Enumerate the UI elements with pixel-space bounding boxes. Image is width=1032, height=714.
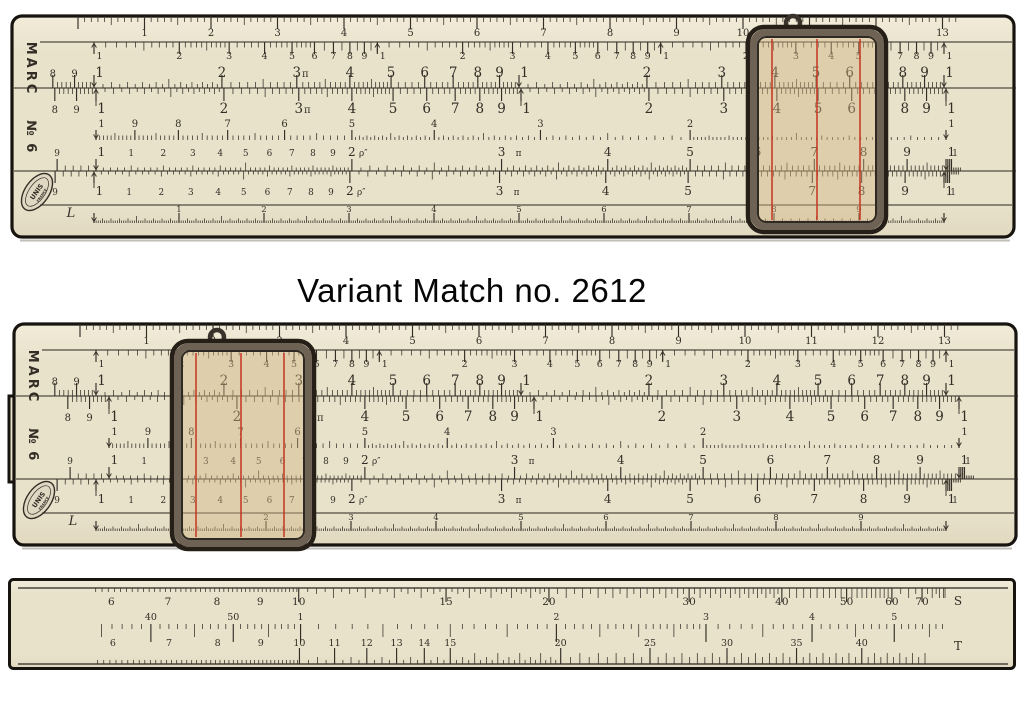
svg-text:7: 7 [899,359,905,370]
svg-text:2: 2 [348,492,356,506]
svg-text:1: 1 [663,51,669,62]
svg-text:1: 1 [520,65,529,81]
svg-text:1: 1 [96,51,102,62]
svg-text:5: 5 [362,427,368,438]
svg-text:9: 9 [930,359,936,370]
svg-text:11: 11 [805,336,818,347]
svg-text:3: 3 [190,149,196,159]
svg-text:1: 1 [141,457,147,467]
svg-text:3: 3 [719,373,728,389]
svg-text:13: 13 [938,336,951,347]
svg-text:6: 6 [754,492,762,506]
svg-text:6: 6 [601,205,606,215]
svg-text:9: 9 [328,188,334,198]
svg-text:2: 2 [687,119,693,130]
cursor-magnifier [748,16,886,232]
svg-text:1: 1 [126,188,132,198]
cursor-glass [181,350,305,540]
svg-text:4: 4 [348,373,357,389]
svg-text:1: 1 [298,612,304,623]
svg-text:7: 7 [330,51,336,62]
svg-text:6: 6 [265,188,271,198]
slide-rule-top: 1234567891011121312345678912345678912345… [10,14,1020,242]
svg-text:5: 5 [389,373,398,389]
svg-text:5: 5 [572,51,578,62]
svg-text:4: 4 [809,612,815,623]
svg-text:2: 2 [208,28,214,39]
svg-text:4: 4 [547,359,553,370]
svg-text:2: 2 [220,101,229,117]
svg-text:9: 9 [675,336,681,347]
svg-text:2: 2 [745,359,751,370]
svg-text:10: 10 [293,638,305,649]
svg-text:4: 4 [545,51,551,62]
slide-rule-middle: 1234567891011121312345678912345678912345… [12,322,1022,550]
svg-text:2: 2 [158,188,164,198]
svg-text:5: 5 [858,359,864,370]
svg-text:8: 8 [914,51,920,62]
svg-text:9: 9 [903,492,911,506]
svg-text:5: 5 [402,409,411,425]
svg-text:5: 5 [407,28,413,39]
svg-text:10: 10 [739,336,752,347]
svg-text:9: 9 [935,409,944,425]
svg-text:8: 8 [52,377,58,388]
svg-text:6: 6 [422,373,431,389]
svg-text:8: 8 [474,65,483,81]
svg-text:2: 2 [462,359,468,370]
svg-text:2: 2 [658,409,667,425]
model-label: № 6 [25,428,40,462]
svg-text:7: 7 [287,188,293,198]
svg-text:25: 25 [644,638,656,649]
svg-text:9: 9 [73,377,79,388]
svg-text:4: 4 [431,205,436,215]
svg-text:7: 7 [542,336,548,347]
svg-text:12: 12 [361,638,373,649]
svg-text:40: 40 [145,612,157,623]
svg-text:9: 9 [673,28,679,39]
svg-text:8: 8 [609,336,615,347]
svg-text:7: 7 [540,28,546,39]
svg-text:7: 7 [289,149,295,159]
sine-tangent-rule-image: 6789101520304050607040501234567891011121… [8,578,1018,672]
svg-text:π: π [516,149,522,159]
svg-text:4: 4 [361,409,370,425]
svg-text:7: 7 [688,513,693,523]
svg-text:7: 7 [166,638,172,649]
svg-text:6: 6 [108,596,115,608]
svg-text:5: 5 [409,336,415,347]
svg-text:4: 4 [773,373,782,389]
svg-text:5: 5 [241,188,247,198]
svg-text:1: 1 [111,427,117,438]
svg-text:3: 3 [732,409,741,425]
svg-text:6: 6 [603,513,608,523]
s-scale-letter: S [954,594,962,608]
svg-text:7: 7 [686,205,691,215]
svg-text:7: 7 [614,51,620,62]
svg-text:40: 40 [775,596,788,608]
svg-text:9: 9 [647,359,653,370]
svg-text:9: 9 [901,184,909,198]
svg-text:8: 8 [476,373,485,389]
svg-text:1: 1 [97,101,106,117]
svg-text:4: 4 [341,28,347,39]
l-scale-letter: L [66,206,76,221]
svg-text:8: 8 [914,409,923,425]
svg-text:1: 1 [945,65,954,81]
svg-text:1: 1 [111,453,119,467]
svg-text:35: 35 [790,638,802,649]
svg-text:π: π [514,188,520,198]
svg-text:9: 9 [52,188,58,198]
svg-text:2: 2 [460,51,466,62]
svg-text:1: 1 [948,119,954,130]
svg-text:8: 8 [773,513,778,523]
svg-text:7: 7 [224,119,230,130]
svg-text:8: 8 [214,596,221,608]
svg-text:9: 9 [86,413,92,424]
svg-text:π: π [302,69,309,80]
svg-text:1: 1 [96,184,104,198]
svg-text:30: 30 [682,596,695,608]
svg-text:9: 9 [145,427,151,438]
svg-text:1: 1 [948,359,954,370]
svg-text:4: 4 [617,453,625,467]
svg-text:1: 1 [95,65,104,81]
svg-text:15: 15 [439,596,452,608]
svg-text:10: 10 [292,596,305,608]
svg-text:1: 1 [961,427,967,438]
svg-text:8: 8 [873,453,881,467]
svg-text:1: 1 [143,336,149,347]
svg-text:6: 6 [474,28,480,39]
svg-text:5: 5 [827,409,836,425]
slide-rule-middle-image: 1234567891011121312345678912345678912345… [12,322,1022,550]
svg-text:5: 5 [891,612,897,623]
svg-text:8: 8 [50,69,56,80]
svg-text:1: 1 [947,101,956,117]
svg-text:6: 6 [267,149,273,159]
svg-text:9: 9 [330,149,336,159]
svg-text:9: 9 [497,373,506,389]
svg-text:8: 8 [901,101,910,117]
svg-text:8: 8 [349,359,355,370]
svg-text:9: 9 [497,101,506,117]
svg-text:4: 4 [444,427,450,438]
svg-text:3: 3 [496,184,504,198]
svg-text:9: 9 [928,51,934,62]
svg-text:3: 3 [348,513,353,523]
svg-text:1: 1 [380,51,386,62]
svg-text:9: 9 [920,65,929,81]
svg-text:1: 1 [98,492,106,506]
svg-text:6: 6 [281,119,287,130]
svg-text:1: 1 [952,496,958,506]
svg-text:30: 30 [721,638,733,649]
svg-text:9: 9 [858,513,863,523]
svg-text:3: 3 [795,359,801,370]
svg-text:π: π [516,496,522,506]
svg-text:7: 7 [451,373,460,389]
svg-text:5: 5 [518,513,523,523]
svg-text:15: 15 [444,638,456,649]
svg-text:3: 3 [703,612,709,623]
svg-text:2: 2 [346,184,354,198]
svg-text:4: 4 [262,51,268,62]
svg-text:4: 4 [217,149,223,159]
l-scale-letter: L [68,514,78,529]
svg-text:13: 13 [936,28,949,39]
svg-text:6: 6 [476,336,482,347]
svg-text:7: 7 [616,359,622,370]
svg-text:1: 1 [535,409,544,425]
svg-text:5: 5 [387,65,396,81]
svg-text:1: 1 [98,145,106,159]
svg-text:ρ″: ρ″ [359,149,368,159]
svg-text:6: 6 [880,359,886,370]
svg-text:8: 8 [607,28,613,39]
svg-text:9: 9 [73,105,79,116]
svg-text:3: 3 [188,188,194,198]
svg-text:50: 50 [840,596,853,608]
svg-text:8: 8 [310,149,316,159]
slide-rule-top-image: 1234567891011121312345678912345678912345… [10,14,1020,242]
svg-text:1: 1 [960,409,969,425]
svg-text:7: 7 [165,596,172,608]
svg-text:2: 2 [176,51,182,62]
svg-text:8: 8 [52,105,58,116]
svg-text:3: 3 [274,28,280,39]
svg-text:2: 2 [361,453,369,467]
svg-text:9: 9 [54,496,60,506]
svg-text:3: 3 [346,205,351,215]
svg-text:π: π [529,457,535,467]
svg-text:4: 4 [786,409,795,425]
svg-text:8: 8 [632,359,638,370]
svg-text:1: 1 [110,409,119,425]
svg-text:1: 1 [98,119,104,130]
svg-text:1: 1 [97,373,106,389]
caption: Variant Match no. 2612 [232,272,712,310]
svg-text:2: 2 [218,65,227,81]
svg-text:4: 4 [830,359,836,370]
svg-text:1: 1 [522,373,531,389]
svg-text:9: 9 [258,638,264,649]
svg-text:2: 2 [645,101,654,117]
svg-text:9: 9 [132,119,138,130]
svg-text:40: 40 [856,638,868,649]
svg-text:6: 6 [597,359,603,370]
svg-text:5: 5 [516,205,521,215]
svg-text:4: 4 [346,65,355,81]
svg-text:7: 7 [811,492,819,506]
svg-text:3: 3 [498,145,506,159]
svg-text:9: 9 [363,359,369,370]
svg-text:8: 8 [489,409,498,425]
svg-text:5: 5 [686,145,694,159]
svg-text:4: 4 [433,513,438,523]
svg-text:14: 14 [418,638,430,649]
svg-text:3: 3 [498,492,506,506]
svg-text:ρ″: ρ″ [357,188,366,198]
svg-text:8: 8 [308,188,314,198]
svg-text:7: 7 [876,373,885,389]
model-label: № 6 [23,120,38,154]
svg-text:8: 8 [860,492,868,506]
photo-collage: 1234567891011121312345678912345678912345… [0,0,1032,714]
svg-text:2: 2 [643,65,652,81]
svg-text:70: 70 [915,596,928,608]
svg-text:2: 2 [261,205,266,215]
svg-text:9: 9 [916,453,924,467]
svg-text:2: 2 [160,496,166,506]
svg-text:3: 3 [294,101,303,117]
svg-text:5: 5 [699,453,707,467]
svg-text:6: 6 [110,638,116,649]
svg-text:8: 8 [630,51,636,62]
t-scale-letter: T [954,639,962,653]
svg-text:3: 3 [537,119,543,130]
svg-text:2: 2 [700,427,706,438]
svg-text:5: 5 [349,119,355,130]
svg-text:60: 60 [885,596,898,608]
svg-text:3: 3 [509,51,515,62]
svg-text:1: 1 [950,188,956,198]
svg-text:9: 9 [71,69,77,80]
svg-text:6: 6 [311,51,317,62]
svg-text:1: 1 [382,359,388,370]
svg-text:8: 8 [65,413,71,424]
cursor-magnifier [172,330,314,549]
svg-text:5: 5 [389,101,398,117]
svg-text:2: 2 [160,149,166,159]
svg-text:3: 3 [511,359,517,370]
svg-text:2: 2 [348,145,356,159]
svg-text:6: 6 [420,65,429,81]
svg-text:7: 7 [824,453,832,467]
svg-text:9: 9 [361,51,367,62]
svg-text:ρ″: ρ″ [359,496,368,506]
svg-text:3: 3 [292,65,301,81]
svg-text:7: 7 [332,359,338,370]
svg-text:4: 4 [604,492,612,506]
svg-text:8: 8 [323,457,329,467]
svg-text:9: 9 [903,145,911,159]
svg-text:11: 11 [329,638,341,649]
svg-text:20: 20 [542,596,555,608]
svg-text:9: 9 [54,149,60,159]
svg-text:9: 9 [67,457,73,467]
svg-text:7: 7 [889,409,898,425]
svg-text:12: 12 [872,336,885,347]
svg-text:5: 5 [684,184,692,198]
svg-text:7: 7 [464,409,473,425]
svg-text:50: 50 [227,612,239,623]
svg-text:5: 5 [574,359,580,370]
svg-text:4: 4 [602,184,610,198]
svg-text:8: 8 [175,119,181,130]
svg-text:8: 8 [901,373,910,389]
svg-text:6: 6 [767,453,775,467]
svg-text:3: 3 [226,51,232,62]
svg-text:5: 5 [243,149,249,159]
svg-text:4: 4 [431,119,437,130]
svg-text:1: 1 [946,51,952,62]
brand-label: MARC [25,350,40,405]
svg-text:3: 3 [717,65,726,81]
svg-text:3: 3 [719,101,728,117]
svg-text:20: 20 [555,638,567,649]
svg-text:1: 1 [141,28,147,39]
svg-text:8: 8 [899,65,908,81]
svg-text:4: 4 [604,145,612,159]
svg-text:13: 13 [391,638,403,649]
svg-text:3: 3 [550,427,556,438]
svg-text:6: 6 [847,373,856,389]
svg-text:1: 1 [965,457,971,467]
svg-text:8: 8 [215,638,221,649]
svg-text:9: 9 [922,101,931,117]
svg-text:4: 4 [343,336,349,347]
svg-text:9: 9 [922,373,931,389]
brand-label: MARC [23,42,38,97]
svg-text:6: 6 [860,409,869,425]
svg-text:8: 8 [476,101,485,117]
svg-text:ρ″: ρ″ [372,457,381,467]
svg-text:6: 6 [422,101,431,117]
svg-text:8: 8 [916,359,922,370]
svg-text:5: 5 [686,492,694,506]
svg-text:6: 6 [435,409,444,425]
svg-text:6: 6 [595,51,601,62]
svg-text:3: 3 [511,453,519,467]
svg-text:4: 4 [348,101,357,117]
svg-text:1: 1 [128,496,134,506]
svg-text:π: π [317,413,324,424]
svg-text:1: 1 [665,359,671,370]
svg-text:7: 7 [897,51,903,62]
svg-text:9: 9 [495,65,504,81]
svg-text:1: 1 [522,101,531,117]
svg-text:9: 9 [257,596,264,608]
svg-text:1: 1 [128,149,134,159]
svg-text:9: 9 [330,496,336,506]
sine-tangent-ruler: 6789101520304050607040501234567891011121… [8,578,1018,672]
svg-text:1: 1 [176,205,181,215]
svg-text:9: 9 [343,457,349,467]
svg-text:2: 2 [645,373,654,389]
svg-text:9: 9 [510,409,519,425]
svg-text:π: π [304,105,311,116]
svg-text:4: 4 [215,188,221,198]
svg-text:1: 1 [952,149,958,159]
svg-text:5: 5 [814,373,823,389]
svg-text:2: 2 [553,612,559,623]
svg-text:8: 8 [347,51,353,62]
svg-text:1: 1 [947,373,956,389]
svg-text:1: 1 [98,359,104,370]
svg-text:7: 7 [451,101,460,117]
svg-text:9: 9 [645,51,651,62]
svg-text:7: 7 [449,65,458,81]
svg-text:5: 5 [289,51,295,62]
